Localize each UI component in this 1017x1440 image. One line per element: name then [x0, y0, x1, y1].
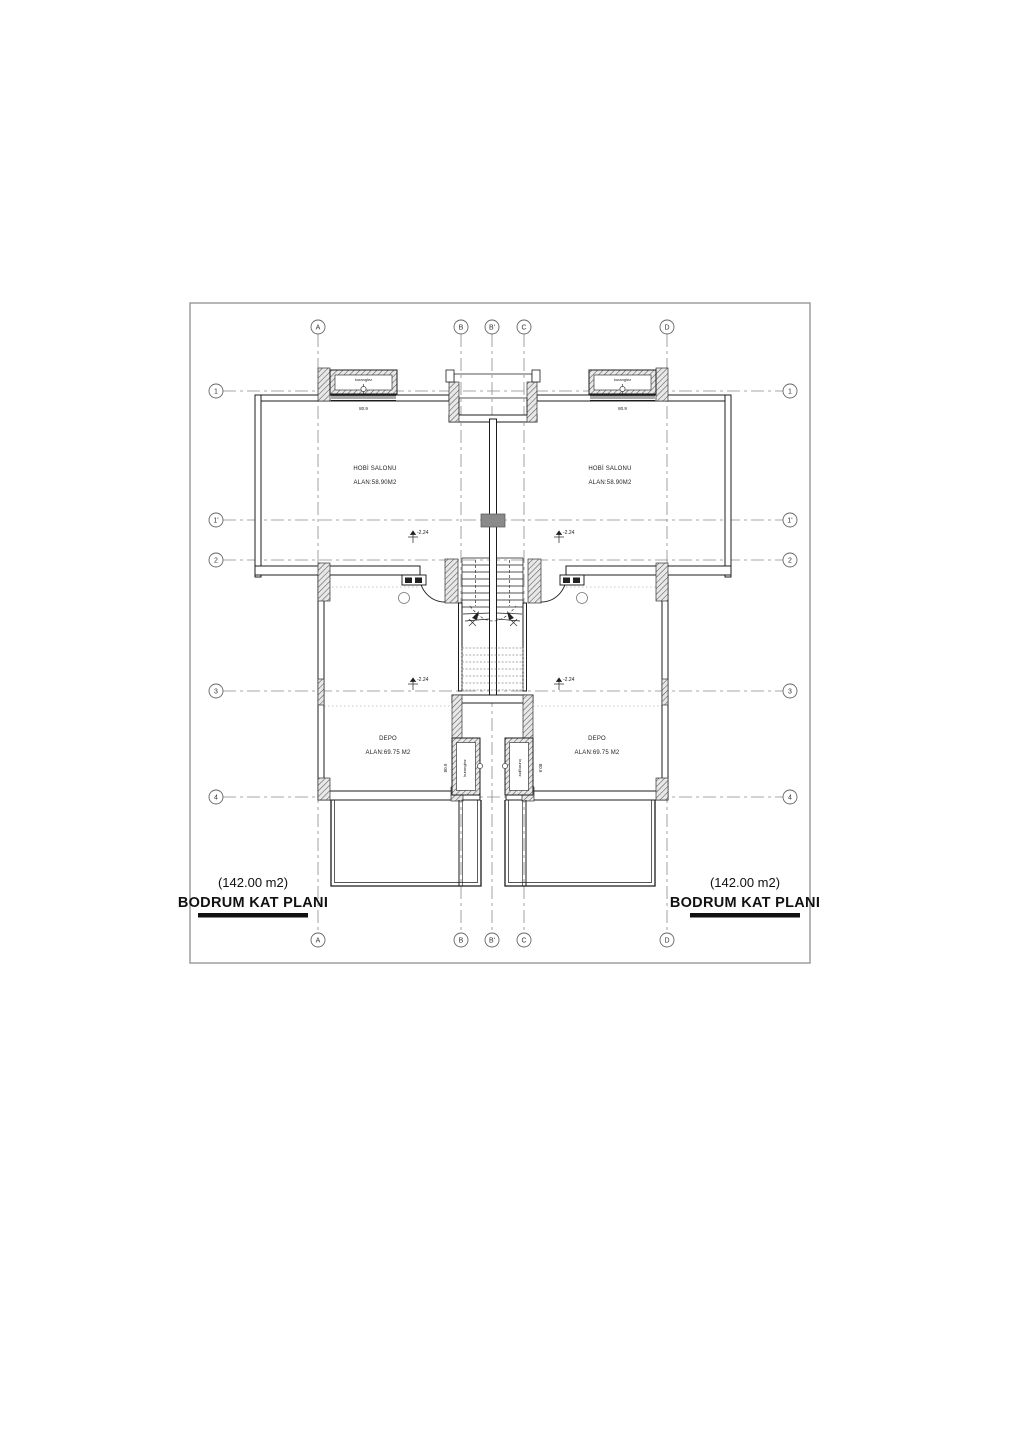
room-area-hobby-right: ALAN:58.90M2	[588, 480, 632, 486]
room-name-depo-left: DEPO	[379, 736, 397, 742]
axis-label-1-left: 1	[214, 389, 218, 396]
party-wall-pier	[481, 514, 505, 527]
window-symbol	[361, 386, 366, 391]
window-well-label: kuranglez	[355, 377, 372, 382]
title-text-right: BODRUM KAT PLANI	[670, 895, 820, 911]
axis-label-1-right: 1	[788, 389, 792, 396]
axis-label-4-left: 4	[214, 795, 218, 802]
axis-label-3-right: 3	[788, 689, 792, 696]
title-area-right: (142.00 m2)	[710, 875, 780, 890]
room-area-hobby-left: ALAN:58.90M2	[353, 480, 397, 486]
room-name-depo-right: DEPO	[588, 736, 606, 742]
wall-side-left	[255, 395, 261, 577]
room-name-hobby-left: HOBİ SALONU	[353, 465, 396, 472]
axis-label-bp-top: B'	[489, 325, 495, 332]
window-well-label: kuranglez	[462, 759, 467, 776]
room-name-hobby-right: HOBİ SALONU	[588, 465, 631, 472]
title-underline	[198, 913, 308, 918]
axis-label-bp-bottom: B'	[489, 938, 495, 945]
axis-label-4-right: 4	[788, 795, 792, 802]
window-well-label: kuranglez	[518, 759, 523, 776]
axis-label-a-bottom: A	[316, 938, 321, 945]
axis-label-b-top: B	[459, 325, 464, 332]
elevation-value: -2.24	[417, 677, 429, 683]
window-symbol	[620, 386, 625, 391]
axis-label-d-top: D	[664, 325, 669, 332]
window-dim-label: 80.9	[538, 764, 543, 773]
window-symbol	[477, 763, 482, 768]
wall-side-right	[725, 395, 731, 577]
floor-plan-page: A B B' C D A B B' C D 1 1' 2 3 4 1 1' 2 …	[0, 0, 1017, 1440]
window-well-label: kuranglez	[614, 377, 631, 382]
elevation-value: -2.24	[563, 677, 575, 683]
title-area-left: (142.00 m2)	[218, 875, 288, 890]
axis-label-b-bottom: B	[459, 938, 464, 945]
elevation-value: -2.24	[417, 530, 429, 536]
wall-row2-left	[255, 566, 420, 575]
axis-label-1p-right: 1'	[787, 518, 792, 525]
room-area-depo-left: ALAN:69.75 M2	[366, 750, 411, 756]
window-dim-label: 80.9	[443, 763, 448, 772]
sheet-frame	[190, 303, 810, 963]
axis-label-d-bottom: D	[664, 938, 669, 945]
axis-label-1p-left: 1'	[213, 518, 218, 525]
room-area-depo-right: ALAN:69.75 M2	[575, 750, 620, 756]
elevation-value: -2.24	[563, 530, 575, 536]
title-text-left: BODRUM KAT PLANI	[178, 895, 328, 911]
window-symbol	[502, 763, 507, 768]
window-dim-label: 80.9	[359, 406, 368, 411]
axis-label-c-top: C	[521, 325, 526, 332]
axis-label-3-left: 3	[214, 689, 218, 696]
window-dim-label: 80.9	[618, 406, 627, 411]
wall-stair-left	[459, 603, 463, 691]
floor-plan-drawing: A B B' C D A B B' C D 1 1' 2 3 4 1 1' 2 …	[0, 0, 1017, 1440]
axis-label-a-top: A	[316, 325, 321, 332]
party-wall	[490, 419, 497, 695]
wall-row3-shaft	[452, 695, 533, 703]
axis-label-c-bottom: C	[521, 938, 526, 945]
title-underline	[690, 913, 800, 918]
axis-label-2-left: 2	[214, 558, 218, 565]
axis-label-2-right: 2	[788, 558, 792, 565]
wall-row2-right	[566, 566, 731, 575]
wall-stair-right	[523, 603, 527, 691]
